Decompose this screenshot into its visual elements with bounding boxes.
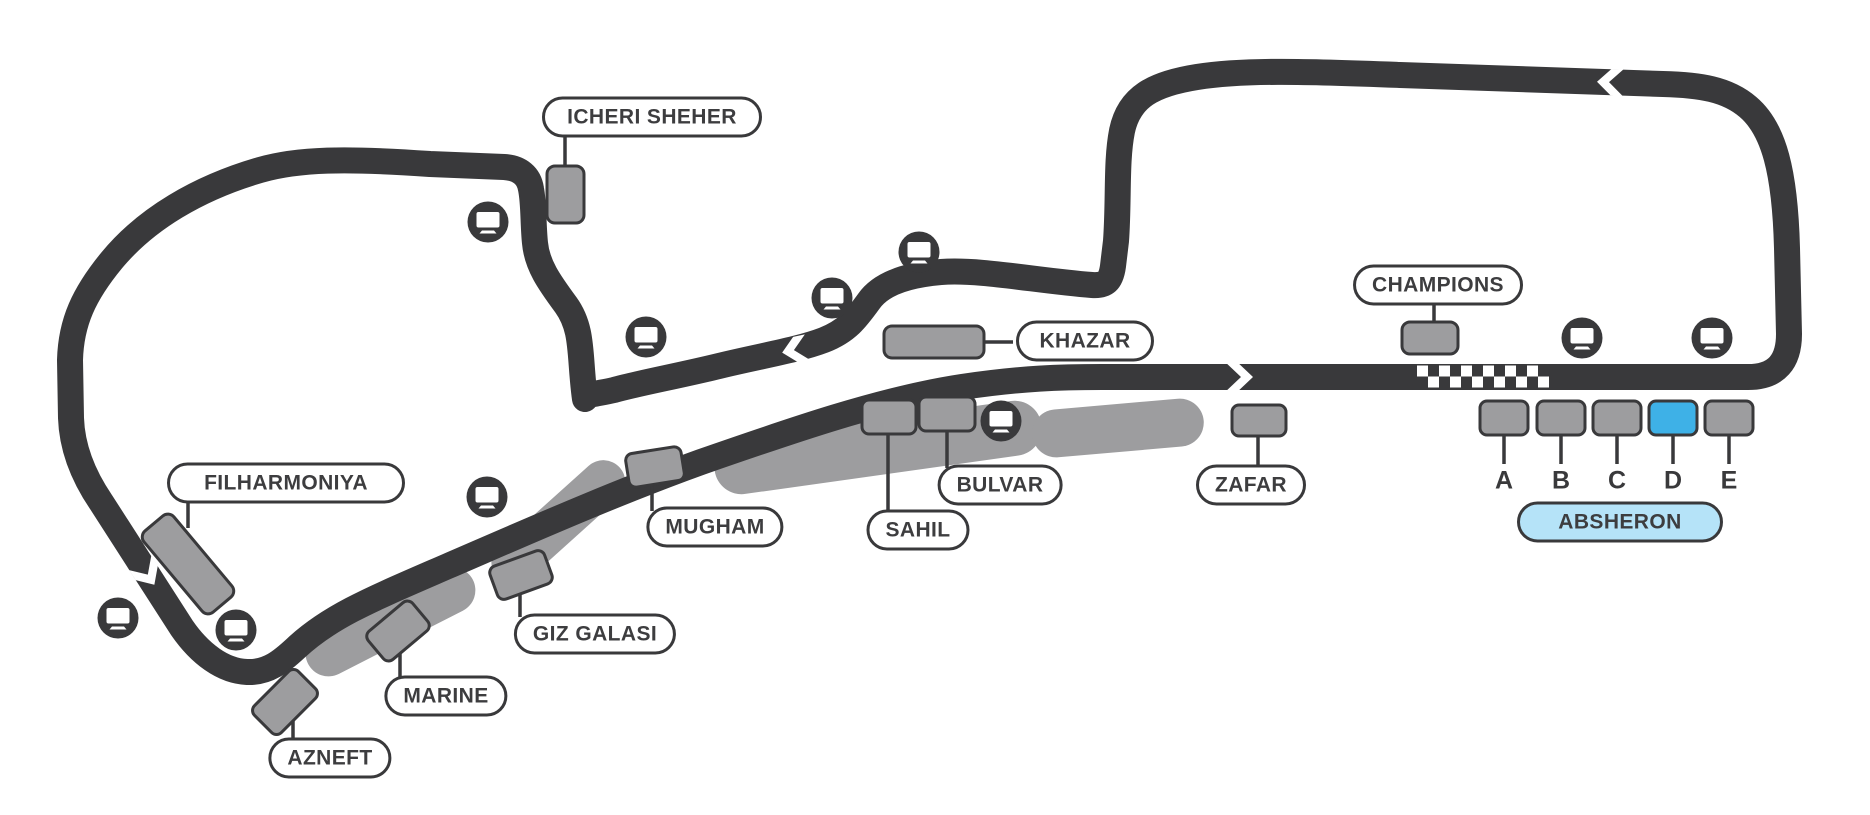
track-map-canvas — [0, 0, 1870, 815]
tv-screen-icon — [1562, 318, 1603, 359]
stand-absheron-e[interactable] — [1705, 401, 1753, 435]
stand-absheron-a[interactable] — [1480, 401, 1528, 435]
label-sahil[interactable]: SAHIL — [867, 510, 970, 551]
stand-zafar[interactable] — [1232, 405, 1286, 436]
stand-champions[interactable] — [1402, 322, 1458, 354]
section-letter-e: E — [1721, 467, 1738, 496]
tv-screen-icon — [98, 598, 139, 639]
circuit-map: ICHERI SHEHER KHAZAR CHAMPIONS ZAFAR BUL… — [0, 0, 1870, 815]
section-letter-b: B — [1552, 467, 1570, 496]
park-blob — [1030, 397, 1206, 460]
section-letter-a: A — [1495, 467, 1513, 496]
label-champions[interactable]: CHAMPIONS — [1353, 265, 1523, 306]
stand-absheron-d-selected[interactable] — [1649, 401, 1697, 435]
label-khazar[interactable]: KHAZAR — [1016, 321, 1154, 362]
stand-sahil[interactable] — [862, 400, 916, 434]
section-letter-c: C — [1608, 467, 1626, 496]
label-absheron-selected[interactable]: ABSHERON — [1517, 502, 1723, 543]
stand-khazar[interactable] — [884, 326, 984, 358]
stand-mugham[interactable] — [625, 446, 686, 488]
label-bulvar[interactable]: BULVAR — [938, 465, 1063, 506]
tv-screen-icon — [467, 477, 508, 518]
label-icheri-sheher[interactable]: ICHERI SHEHER — [542, 97, 762, 138]
label-mugham[interactable]: MUGHAM — [646, 507, 783, 548]
section-letter-d: D — [1664, 467, 1682, 496]
tv-screen-icon — [626, 317, 667, 358]
stand-icheri-sheher[interactable] — [547, 166, 584, 223]
tv-screen-icon — [812, 278, 853, 319]
label-giz-galasi[interactable]: GIZ GALASI — [514, 614, 676, 655]
tv-screen-icon — [216, 610, 257, 651]
tv-screen-icon — [468, 202, 509, 243]
label-filharmoniya[interactable]: FILHARMONIYA — [167, 463, 405, 504]
stand-bulvar[interactable] — [919, 397, 975, 431]
label-azneft[interactable]: AZNEFT — [268, 738, 391, 779]
tv-screen-icon — [981, 401, 1022, 442]
label-zafar[interactable]: ZAFAR — [1196, 465, 1306, 506]
tv-screen-icon — [1692, 318, 1733, 359]
label-marine[interactable]: MARINE — [384, 676, 507, 717]
stand-absheron-c[interactable] — [1593, 401, 1641, 435]
tv-screen-icon — [899, 232, 940, 273]
start-finish-line — [1417, 366, 1549, 388]
stand-absheron-b[interactable] — [1537, 401, 1585, 435]
